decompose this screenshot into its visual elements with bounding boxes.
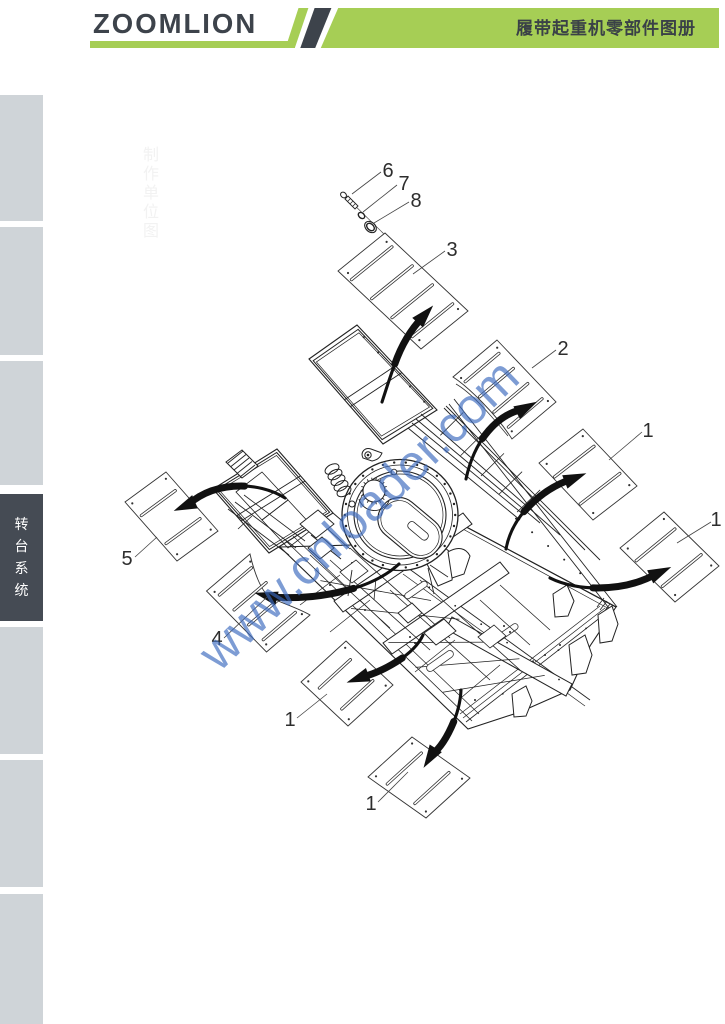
svg-text:8: 8 <box>410 190 421 212</box>
svg-text:3: 3 <box>446 239 457 261</box>
svg-text:图: 图 <box>143 223 159 240</box>
svg-text:1: 1 <box>284 709 295 731</box>
svg-text:7: 7 <box>398 173 409 195</box>
svg-text:制: 制 <box>143 146 159 164</box>
svg-text:作: 作 <box>143 165 159 183</box>
svg-text:1: 1 <box>642 420 653 442</box>
svg-text:位: 位 <box>143 203 159 221</box>
svg-text:5: 5 <box>121 548 132 570</box>
svg-text:单: 单 <box>143 184 159 202</box>
svg-text:2: 2 <box>557 338 568 360</box>
svg-text:1: 1 <box>365 793 376 815</box>
svg-text:6: 6 <box>382 160 393 182</box>
svg-text:1: 1 <box>710 509 721 531</box>
